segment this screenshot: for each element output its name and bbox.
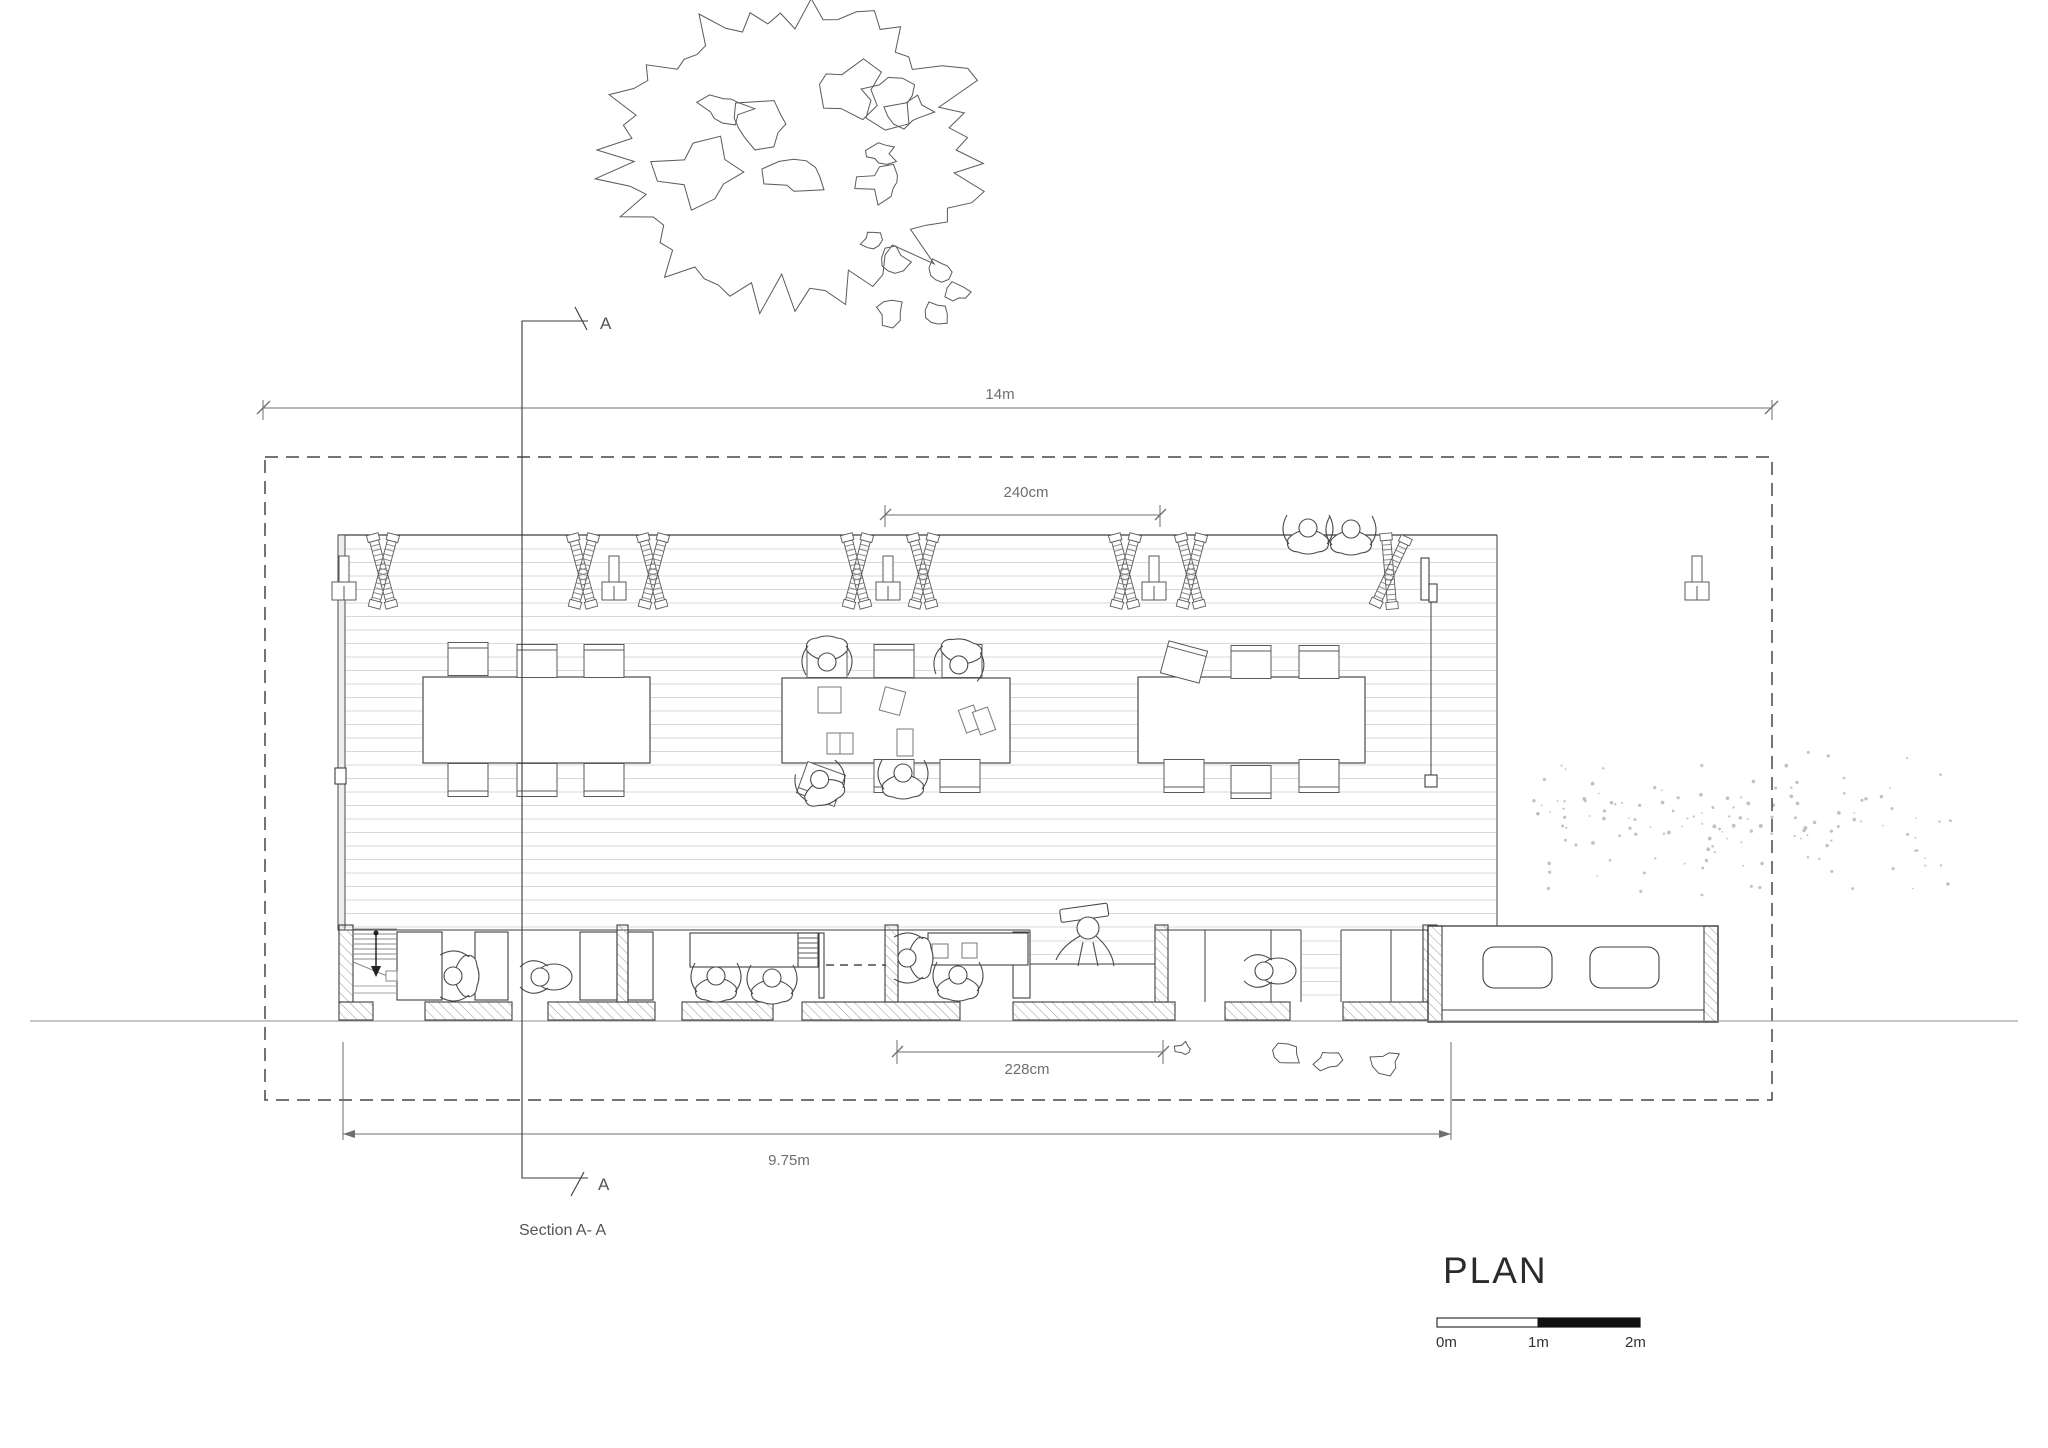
hatched-wall <box>339 925 353 1002</box>
dim-building-label: 9.75m <box>768 1152 810 1169</box>
table-left <box>423 677 650 763</box>
paper-sheet <box>897 729 913 756</box>
pole <box>1421 558 1437 787</box>
plan-title: PLAN <box>1443 1250 1548 1291</box>
partition <box>397 932 442 1000</box>
dimension-bay-bottom: 228cm <box>892 1040 1169 1078</box>
paper-sheet <box>818 687 841 713</box>
folded-chair-icon <box>636 533 669 610</box>
folded-chair-icon <box>906 533 939 610</box>
hatched-wall <box>617 925 628 1002</box>
shrub <box>929 259 952 282</box>
floor-plan-canvas: 14m 240cm 228cm 9.75m A A Section A- A <box>0 0 2048 1448</box>
paper-sheet <box>932 944 948 958</box>
bottom-wall-segment <box>548 1002 655 1020</box>
chair <box>940 760 980 793</box>
chair <box>1299 760 1339 793</box>
fixture <box>1483 947 1552 988</box>
dim-bay-bottom-label: 228cm <box>1004 1061 1049 1078</box>
section-marker-bottom: A <box>598 1175 610 1194</box>
bottom-wall-segment <box>1013 1002 1175 1020</box>
gravel-scatter <box>1532 751 1952 896</box>
section-marker-top: A <box>600 314 612 333</box>
open-book <box>827 733 840 754</box>
chair <box>1164 760 1204 793</box>
folded-stand-icon <box>1685 556 1709 600</box>
bottom-wall-segment <box>682 1002 773 1020</box>
chair <box>1231 646 1271 679</box>
stone <box>1313 1053 1343 1071</box>
folded-chair-icon <box>1108 533 1141 610</box>
dim-overall-label: 14m <box>985 386 1014 403</box>
chair <box>1299 646 1339 679</box>
person-bending <box>1056 903 1114 966</box>
fixture <box>1590 947 1659 988</box>
chair <box>1231 766 1271 799</box>
bottom-wall-segment <box>802 1002 960 1020</box>
folded-chair-icon <box>840 533 873 610</box>
stone <box>1273 1043 1300 1063</box>
shrub <box>925 302 947 324</box>
tree-canopy <box>595 0 984 328</box>
bottom-wall-segment <box>1343 1002 1428 1020</box>
scale-2m: 2m <box>1625 1334 1646 1351</box>
chair <box>584 764 624 797</box>
folded-chair-icon <box>566 533 599 610</box>
chair <box>517 645 557 678</box>
dim-bay-top-label: 240cm <box>1003 484 1048 501</box>
open-book <box>840 733 853 754</box>
chair <box>448 643 488 676</box>
scale-bar: 0m 1m 2m <box>1436 1318 1646 1351</box>
partition <box>475 932 508 1000</box>
folded-deck-chairs <box>332 531 1709 612</box>
hatched-wall <box>885 925 898 1002</box>
dimension-overall: 14m <box>257 386 1778 420</box>
bottom-wall-segment <box>1225 1002 1290 1020</box>
shrub <box>860 232 882 249</box>
shrub <box>877 300 903 328</box>
table-right <box>1138 677 1365 763</box>
partition <box>628 932 653 1000</box>
partition <box>580 932 617 1000</box>
stones <box>1174 1042 1399 1076</box>
shrub <box>945 282 971 301</box>
bottom-wall-segment <box>339 1002 373 1020</box>
chair <box>517 764 557 797</box>
scale-0m: 0m <box>1436 1334 1457 1351</box>
folded-chair-icon <box>1174 533 1207 610</box>
wall-fitting <box>335 768 346 784</box>
chair <box>584 645 624 678</box>
chair <box>448 764 488 797</box>
stone <box>1370 1053 1399 1076</box>
chair <box>874 645 914 678</box>
bottom-wall-segment <box>425 1002 512 1020</box>
paper-sheet <box>962 943 977 958</box>
scale-1m: 1m <box>1528 1334 1549 1351</box>
hatched-wall <box>1155 925 1168 1002</box>
section-caption: Section A- A <box>519 1222 606 1239</box>
shrub <box>882 246 912 274</box>
dimension-bay-top: 240cm <box>880 484 1166 527</box>
folded-chair-icon <box>1367 531 1413 612</box>
stone <box>1174 1042 1190 1055</box>
folded-chair-icon <box>366 533 399 610</box>
annex-block <box>1428 926 1718 1022</box>
